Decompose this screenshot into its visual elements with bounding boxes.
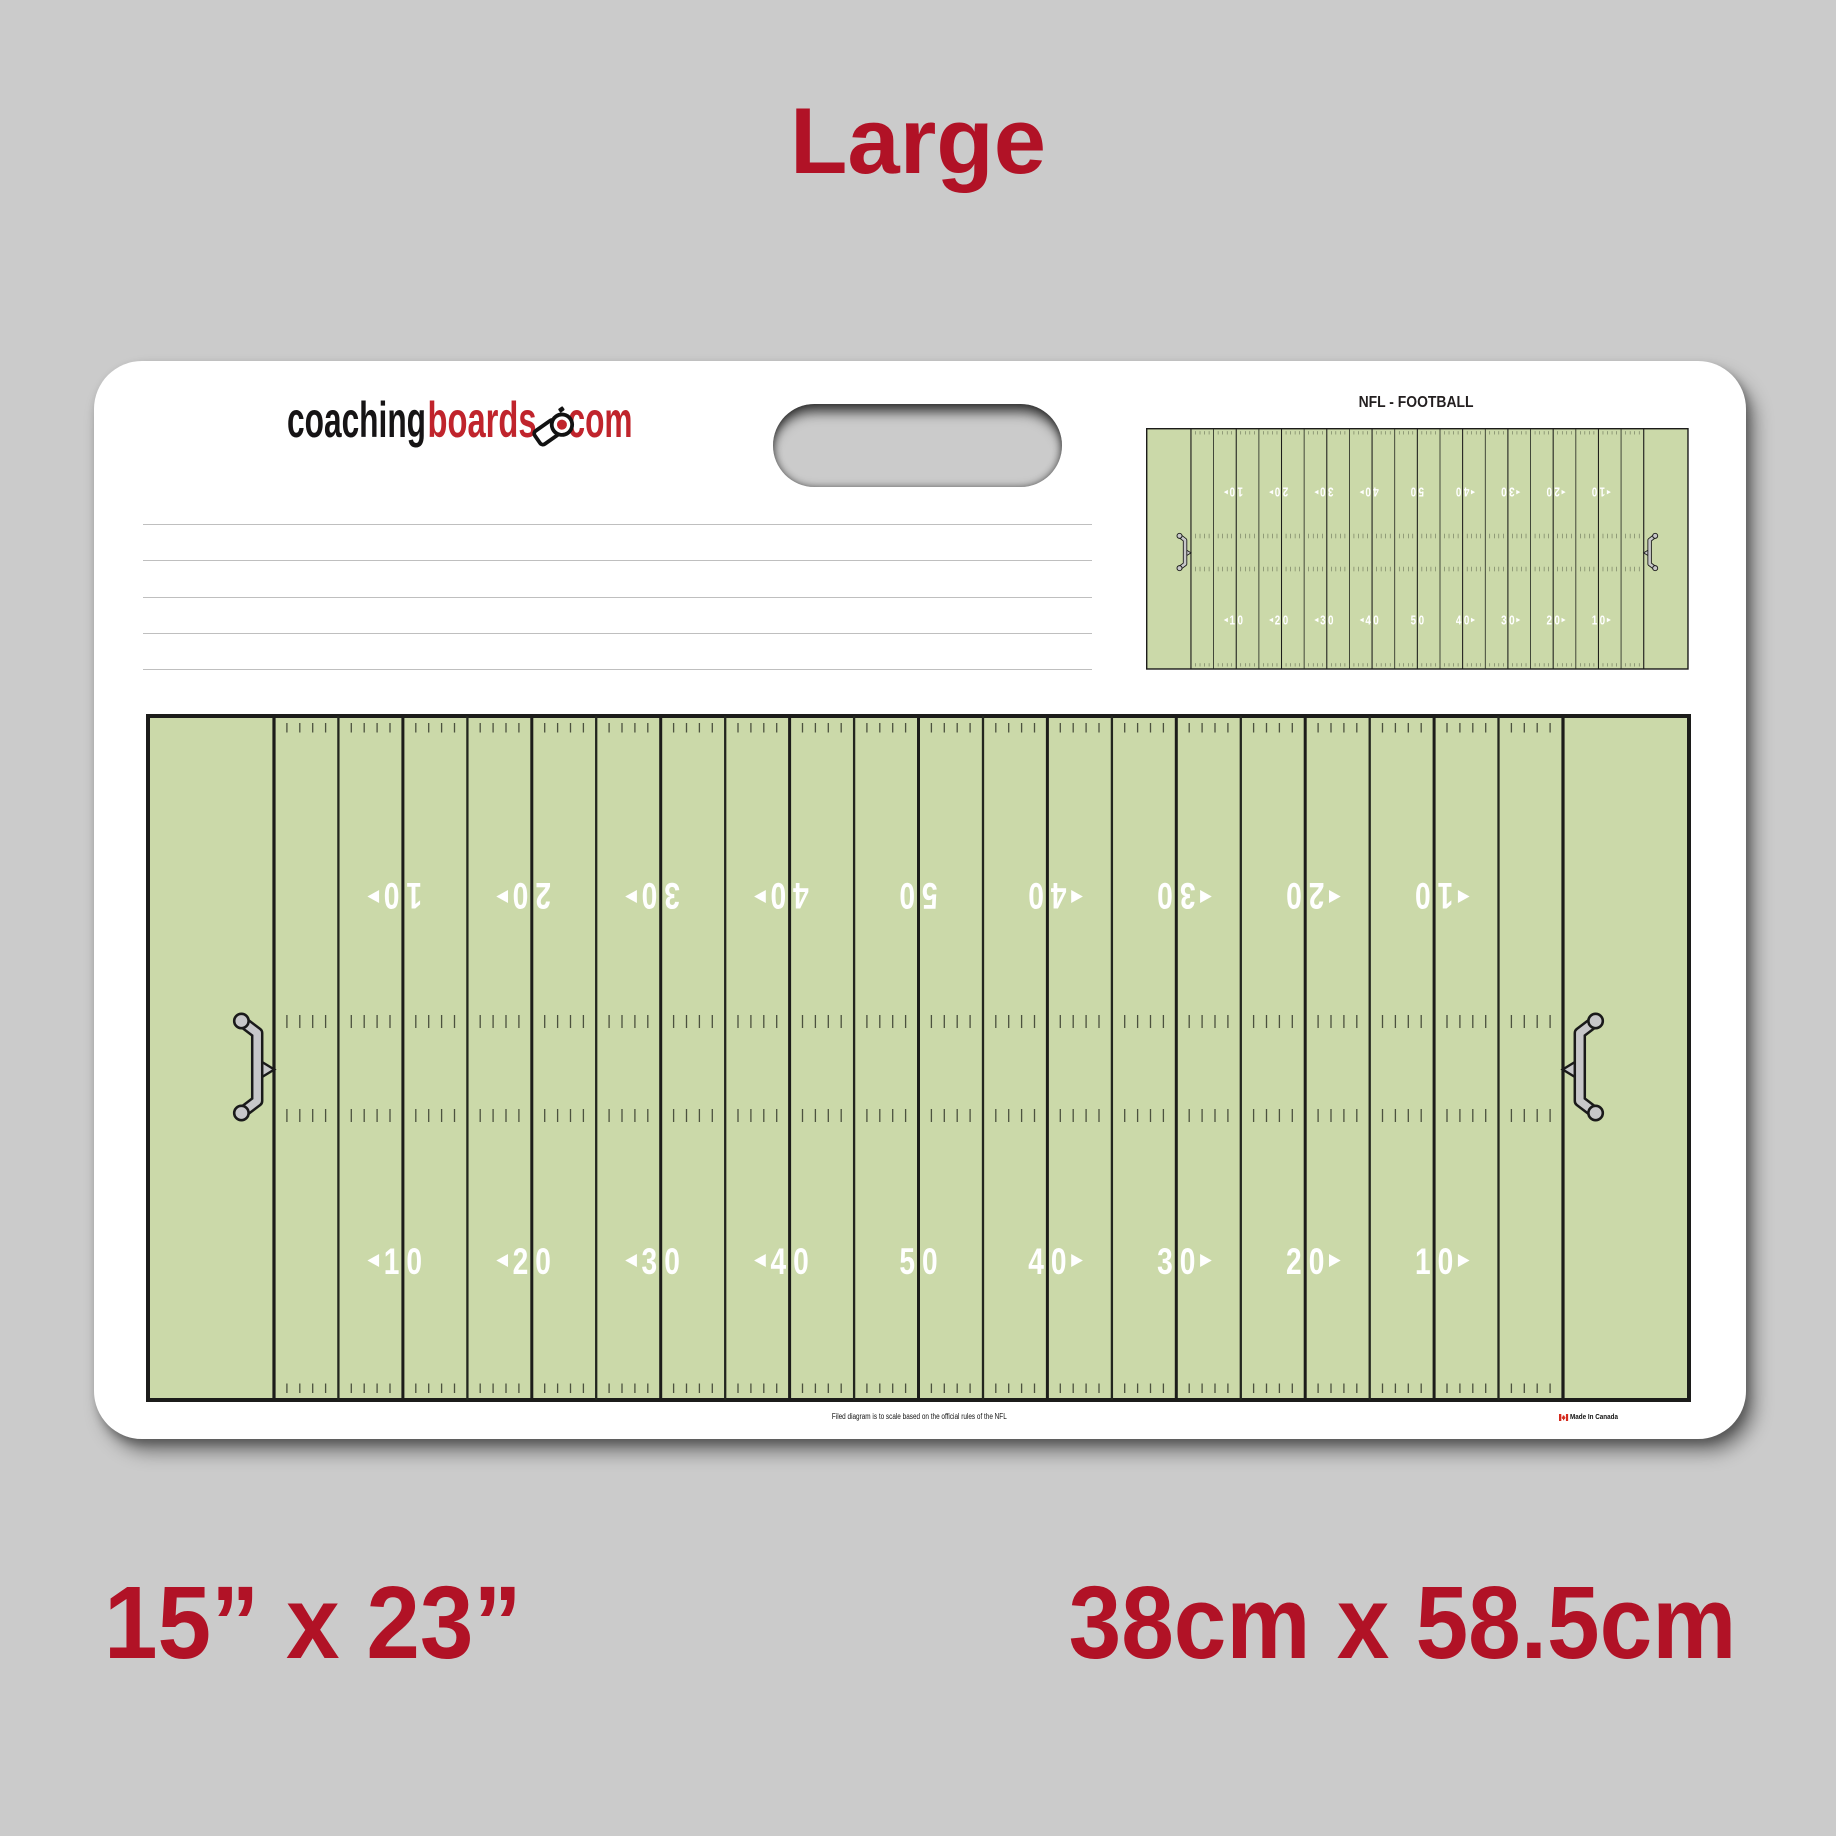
svg-text:4: 4: [1365, 613, 1371, 628]
svg-text:0: 0: [1028, 874, 1044, 916]
svg-text:0: 0: [1464, 613, 1469, 628]
svg-text:1: 1: [1438, 874, 1454, 916]
svg-text:3: 3: [1180, 874, 1196, 916]
svg-text:0: 0: [1275, 484, 1280, 499]
svg-text:1: 1: [406, 874, 422, 916]
svg-text:3: 3: [664, 874, 680, 916]
svg-text:0: 0: [642, 874, 658, 916]
svg-text:0: 0: [1237, 613, 1242, 628]
svg-text:4: 4: [1028, 1241, 1044, 1283]
svg-text:0: 0: [1051, 1241, 1067, 1283]
svg-text:0: 0: [1373, 613, 1378, 628]
svg-text:1: 1: [1599, 484, 1605, 499]
svg-text:0: 0: [1283, 613, 1288, 628]
svg-text:0: 0: [1546, 484, 1551, 499]
svg-text:2: 2: [1546, 613, 1551, 628]
svg-text:5: 5: [1411, 613, 1417, 628]
svg-text:coaching: coaching: [287, 392, 426, 448]
svg-text:0: 0: [1600, 613, 1605, 628]
svg-text:2: 2: [1309, 874, 1325, 916]
svg-text:5: 5: [1418, 484, 1424, 499]
svg-text:4: 4: [1456, 613, 1462, 628]
svg-text:0: 0: [535, 1241, 551, 1283]
svg-text:3: 3: [1501, 613, 1507, 628]
svg-text:0: 0: [1501, 484, 1506, 499]
svg-text:2: 2: [1283, 484, 1288, 499]
svg-text:4: 4: [1463, 484, 1469, 499]
svg-text:0: 0: [1554, 613, 1559, 628]
svg-text:1: 1: [384, 1241, 400, 1283]
svg-text:0: 0: [899, 874, 915, 916]
svg-text:0: 0: [1180, 1241, 1196, 1283]
svg-text:1: 1: [1230, 613, 1236, 628]
svg-text:boards: boards: [428, 392, 537, 448]
svg-text:4: 4: [793, 874, 809, 916]
svg-text:2: 2: [1286, 1241, 1302, 1283]
svg-text:0: 0: [384, 874, 400, 916]
svg-text:0: 0: [922, 1241, 938, 1283]
svg-text:2: 2: [513, 1241, 529, 1283]
svg-text:0: 0: [513, 874, 529, 916]
svg-text:0: 0: [664, 1241, 680, 1283]
svg-text:5: 5: [922, 874, 938, 916]
svg-text:com: com: [568, 392, 633, 448]
svg-text:5: 5: [899, 1241, 915, 1283]
svg-text:0: 0: [1157, 874, 1173, 916]
svg-text:3: 3: [1328, 484, 1334, 499]
svg-text:2: 2: [535, 874, 551, 916]
svg-text:0: 0: [793, 1241, 809, 1283]
svg-text:0: 0: [1592, 484, 1597, 499]
svg-text:0: 0: [1309, 1241, 1325, 1283]
svg-text:2: 2: [1554, 484, 1559, 499]
svg-text:0: 0: [1456, 484, 1461, 499]
svg-text:0: 0: [1509, 613, 1514, 628]
svg-text:3: 3: [642, 1241, 658, 1283]
svg-text:3: 3: [1509, 484, 1515, 499]
svg-text:0: 0: [1365, 484, 1370, 499]
svg-text:0: 0: [406, 1241, 422, 1283]
svg-text:0: 0: [770, 874, 786, 916]
svg-text:1: 1: [1415, 1241, 1431, 1283]
svg-text:4: 4: [770, 1241, 786, 1283]
svg-text:0: 0: [1230, 484, 1235, 499]
svg-text:0: 0: [1328, 613, 1333, 628]
svg-text:1: 1: [1592, 613, 1598, 628]
svg-text:0: 0: [1320, 484, 1325, 499]
svg-text:0: 0: [1438, 1241, 1454, 1283]
svg-text:0: 0: [1419, 613, 1424, 628]
svg-text:2: 2: [1275, 613, 1280, 628]
svg-text:0: 0: [1415, 874, 1431, 916]
svg-text:4: 4: [1373, 484, 1379, 499]
svg-text:1: 1: [1237, 484, 1243, 499]
svg-text:3: 3: [1320, 613, 1326, 628]
svg-text:3: 3: [1157, 1241, 1173, 1283]
svg-text:0: 0: [1286, 874, 1302, 916]
svg-text:0: 0: [1411, 484, 1416, 499]
svg-text:4: 4: [1050, 874, 1066, 916]
